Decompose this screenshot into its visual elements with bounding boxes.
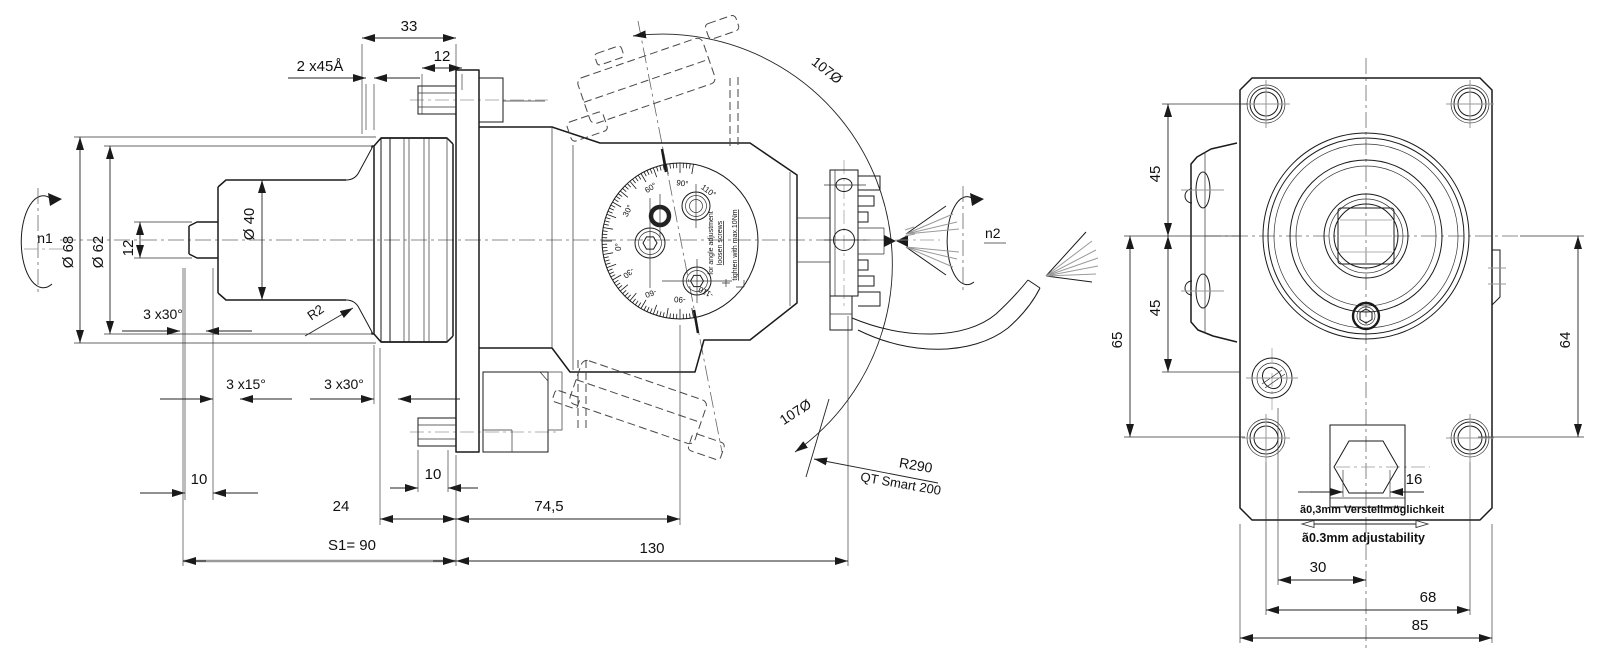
output-collet — [824, 170, 915, 330]
dim-dia68-label: Ø 68 — [60, 236, 77, 269]
dim-dia40-label: Ø 40 — [241, 208, 258, 241]
dim-chamfer-30a: 3 x30° — [122, 306, 252, 331]
spin-label-n2: n2 — [985, 225, 1001, 241]
dim-130-label: 130 — [639, 540, 664, 557]
dim-3x30a-label: 3 x30° — [143, 306, 183, 322]
r290-callout: R290 QT Smart 200 — [806, 399, 942, 498]
dim-10-right-label: 10 — [425, 466, 442, 483]
note-loosen-screws: loosen screws — [717, 220, 724, 265]
dim-107-bottom: 107Ø — [777, 396, 815, 428]
dim-45b-label: 45 — [1147, 300, 1164, 317]
dim-s1-label: S1= 90 — [328, 537, 376, 554]
hidden-clamp-top — [548, 7, 757, 142]
dim-64: 64 — [1478, 236, 1584, 437]
corner-holes — [1242, 80, 1494, 462]
dial-label-neg30: -30 — [621, 266, 636, 281]
drawing-canvas: 0° 30° 60° 90° 110° -30 -60 -90 -110 for… — [0, 0, 1600, 663]
adjustability-note: ã0,3mm Verstellmöglichkeit ã0.3mm adjust… — [1300, 504, 1445, 545]
dim-r2: R2 — [304, 301, 353, 336]
dim-10-left: 10 — [140, 471, 258, 493]
dial-notes: for angle adjustment loosen screws tight… — [708, 209, 744, 287]
dial-label-60: 60° — [643, 181, 658, 195]
hidden-clamp-bottom — [551, 354, 736, 461]
front-view: 45 45 65 64 16 ã0,3mm Verstellmöglichkei… — [1109, 58, 1584, 652]
dim-45a-label: 45 — [1147, 166, 1164, 183]
technical-drawing: 0° 30° 60° 90° 110° -30 -60 -90 -110 for… — [0, 0, 1600, 663]
dim-3x15-label: 3 x15° — [226, 376, 266, 392]
dim-r2-label: R2 — [304, 301, 326, 323]
dial-label-90: 90° — [676, 178, 689, 189]
note-tighten-torque: tighten with max.10Nm — [732, 209, 739, 280]
adjustability-label-en: ã0.3mm adjustability — [1302, 531, 1425, 545]
dim-chamfer-2x45: 2 x45Å — [288, 58, 420, 130]
dim-30: 30 — [1278, 408, 1366, 585]
rotation-arrow-n2 — [970, 193, 984, 206]
dim-33: 33 — [362, 18, 456, 134]
dim-45-bottom: 45 — [1147, 236, 1240, 372]
dim-r290: R290 — [898, 454, 934, 476]
adjustability-label-de: ã0,3mm Verstellmöglichkeit — [1300, 504, 1445, 516]
dim-85-label: 85 — [1412, 617, 1429, 634]
dial-label-0: 0° — [614, 243, 623, 251]
dim-2x45-label: 2 x45Å — [297, 58, 344, 75]
dial-label-neg90: -90 — [673, 295, 686, 305]
coolant-spray-left — [906, 206, 959, 275]
rotation-arrow-n1 — [48, 193, 62, 206]
centerlines — [60, 21, 908, 452]
dial-screw-2 — [651, 194, 669, 238]
dim-65: 65 — [1109, 236, 1245, 437]
rotation-symbol-n2: n2 — [895, 186, 1006, 294]
dim-24-label: 24 — [333, 498, 350, 515]
coolant-spray-cable-end — [1046, 232, 1098, 282]
hole-top-left — [1242, 80, 1290, 128]
dim-130: 130 — [456, 316, 848, 566]
side-clamp-block — [1181, 143, 1237, 342]
hole-top-right — [1446, 80, 1494, 128]
gear-housing — [479, 127, 830, 372]
dim-74-5-label: 74,5 — [534, 498, 563, 515]
angle-dial: 0° 30° 60° 90° 110° -30 -60 -90 -110 for… — [602, 149, 758, 333]
dim-chamfer-30b: 3 x30° — [310, 345, 460, 404]
spin-label-n1: n1 — [37, 230, 53, 246]
hex-boss — [1330, 425, 1405, 507]
dim-64-label: 64 — [1557, 332, 1574, 349]
dim-12-top-label: 12 — [434, 48, 451, 65]
dim-30-label: 30 — [1310, 559, 1327, 576]
dim-10-right: 10 — [390, 450, 478, 492]
collet-serrations — [858, 176, 884, 306]
dim-45-top: 45 — [1124, 104, 1248, 236]
rotation-symbol-n1: n1 — [21, 188, 64, 292]
dim-12-step-label: 12 — [120, 240, 137, 257]
centerlines-front — [1205, 58, 1520, 652]
dim-107-top: 107Ø — [809, 53, 846, 87]
dial-label-neg60: -60 — [643, 287, 657, 299]
dim-74-5: 74,5 — [456, 325, 680, 525]
centerline-arrows — [884, 227, 915, 247]
dial-label-30: 30° — [621, 203, 635, 218]
dim-16-label: 16 — [1406, 471, 1423, 488]
side-view: 0° 30° 60° 90° 110° -30 -60 -90 -110 for… — [21, 7, 1098, 566]
dim-65-label: 65 — [1109, 332, 1126, 349]
dim-chamfer-15: 3 x15° — [160, 268, 292, 500]
note-angle-adjustment: for angle adjustment — [708, 211, 715, 274]
dim-10-left-label: 10 — [191, 471, 208, 488]
dim-33-label: 33 — [401, 18, 418, 35]
bottom-block — [483, 372, 562, 452]
hole-bottom-left — [1242, 414, 1290, 462]
dim-3x30b-label: 3 x30° — [324, 376, 364, 392]
hole-bottom-right — [1446, 414, 1494, 462]
dim-68-label: 68 — [1420, 589, 1437, 606]
dim-dia62-label: Ø 62 — [90, 236, 107, 269]
dial-label-110: 110° — [699, 183, 717, 200]
